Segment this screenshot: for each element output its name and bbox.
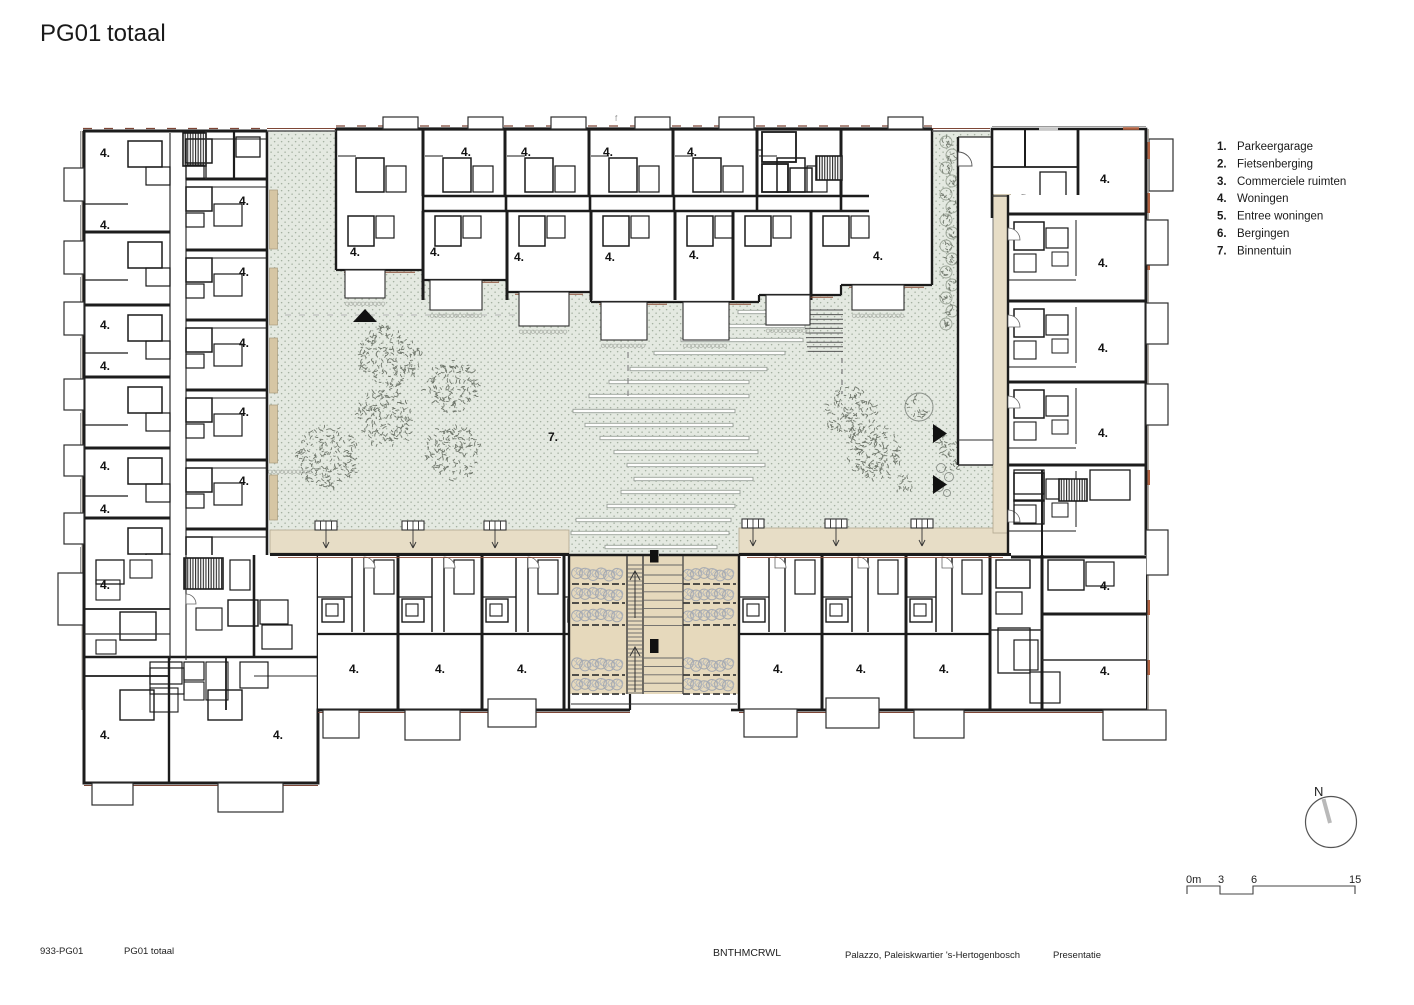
- svg-text:4.: 4.: [603, 145, 613, 159]
- svg-text:4.: 4.: [1100, 172, 1110, 186]
- svg-text:4.: 4.: [521, 145, 531, 159]
- svg-text:6.: 6.: [1217, 228, 1227, 240]
- svg-text:4.: 4.: [1098, 341, 1108, 355]
- svg-text:4.: 4.: [435, 662, 445, 676]
- svg-text:4.: 4.: [273, 728, 283, 742]
- svg-text:4.: 4.: [1217, 193, 1227, 205]
- svg-text:4.: 4.: [1098, 256, 1108, 270]
- svg-text:4.: 4.: [100, 218, 110, 232]
- svg-text:4.: 4.: [349, 662, 359, 676]
- svg-text:4.: 4.: [100, 578, 110, 592]
- svg-text:Palazzo, Paleiskwartier 's-Her: Palazzo, Paleiskwartier 's-Hertogenbosch: [845, 950, 1020, 961]
- svg-text:N: N: [1314, 784, 1323, 799]
- svg-text:totaal: totaal: [107, 20, 166, 47]
- svg-text:933-PG01: 933-PG01: [40, 946, 83, 957]
- svg-text:6: 6: [1251, 874, 1257, 886]
- svg-text:4.: 4.: [350, 245, 360, 259]
- svg-text:4.: 4.: [517, 662, 527, 676]
- svg-text:4.: 4.: [689, 248, 699, 262]
- svg-text:4.: 4.: [939, 662, 949, 676]
- svg-text:4.: 4.: [1100, 664, 1110, 678]
- svg-text:PG01: PG01: [40, 20, 101, 47]
- svg-text:Commerciele ruimten: Commerciele ruimten: [1237, 176, 1346, 188]
- svg-text:3.: 3.: [1217, 176, 1227, 188]
- svg-text:5.: 5.: [1217, 211, 1227, 223]
- svg-text:4.: 4.: [461, 145, 471, 159]
- svg-text:4.: 4.: [100, 502, 110, 516]
- svg-text:Binnentuin: Binnentuin: [1237, 245, 1291, 257]
- svg-text:4.: 4.: [239, 474, 249, 488]
- svg-text:BNTHMCRWL: BNTHMCRWL: [713, 947, 781, 959]
- svg-text:4.: 4.: [239, 336, 249, 350]
- svg-text:Presentatie: Presentatie: [1053, 950, 1101, 961]
- svg-text:7.: 7.: [1217, 245, 1227, 257]
- svg-text:2.: 2.: [1217, 158, 1227, 170]
- svg-text:4.: 4.: [430, 245, 440, 259]
- svg-text:4.: 4.: [239, 405, 249, 419]
- svg-text:4.: 4.: [1100, 579, 1110, 593]
- svg-text:4.: 4.: [100, 359, 110, 373]
- svg-text:Entree woningen: Entree woningen: [1237, 211, 1323, 223]
- svg-text:4.: 4.: [687, 145, 697, 159]
- svg-text:Parkeergarage: Parkeergarage: [1237, 141, 1313, 153]
- svg-text:3: 3: [1218, 874, 1224, 886]
- svg-text:PG01 totaal: PG01 totaal: [124, 946, 174, 957]
- svg-text:1.: 1.: [1217, 141, 1227, 153]
- svg-text:4.: 4.: [100, 728, 110, 742]
- svg-text:7.: 7.: [548, 430, 558, 444]
- svg-text:4.: 4.: [1098, 426, 1108, 440]
- svg-text:4.: 4.: [100, 318, 110, 332]
- svg-text:4.: 4.: [773, 662, 783, 676]
- svg-text:Fietsenberging: Fietsenberging: [1237, 158, 1313, 170]
- svg-text:15: 15: [1349, 874, 1361, 886]
- svg-text:4.: 4.: [605, 250, 615, 264]
- svg-text:4.: 4.: [100, 146, 110, 160]
- svg-text:4.: 4.: [873, 249, 883, 263]
- svg-text:Bergingen: Bergingen: [1237, 228, 1289, 240]
- svg-text:4.: 4.: [100, 459, 110, 473]
- svg-text:4.: 4.: [856, 662, 866, 676]
- svg-text:0m: 0m: [1186, 874, 1201, 886]
- svg-text:4.: 4.: [239, 265, 249, 279]
- svg-text:4.: 4.: [514, 250, 524, 264]
- svg-text:4.: 4.: [239, 194, 249, 208]
- svg-text:Woningen: Woningen: [1237, 193, 1289, 205]
